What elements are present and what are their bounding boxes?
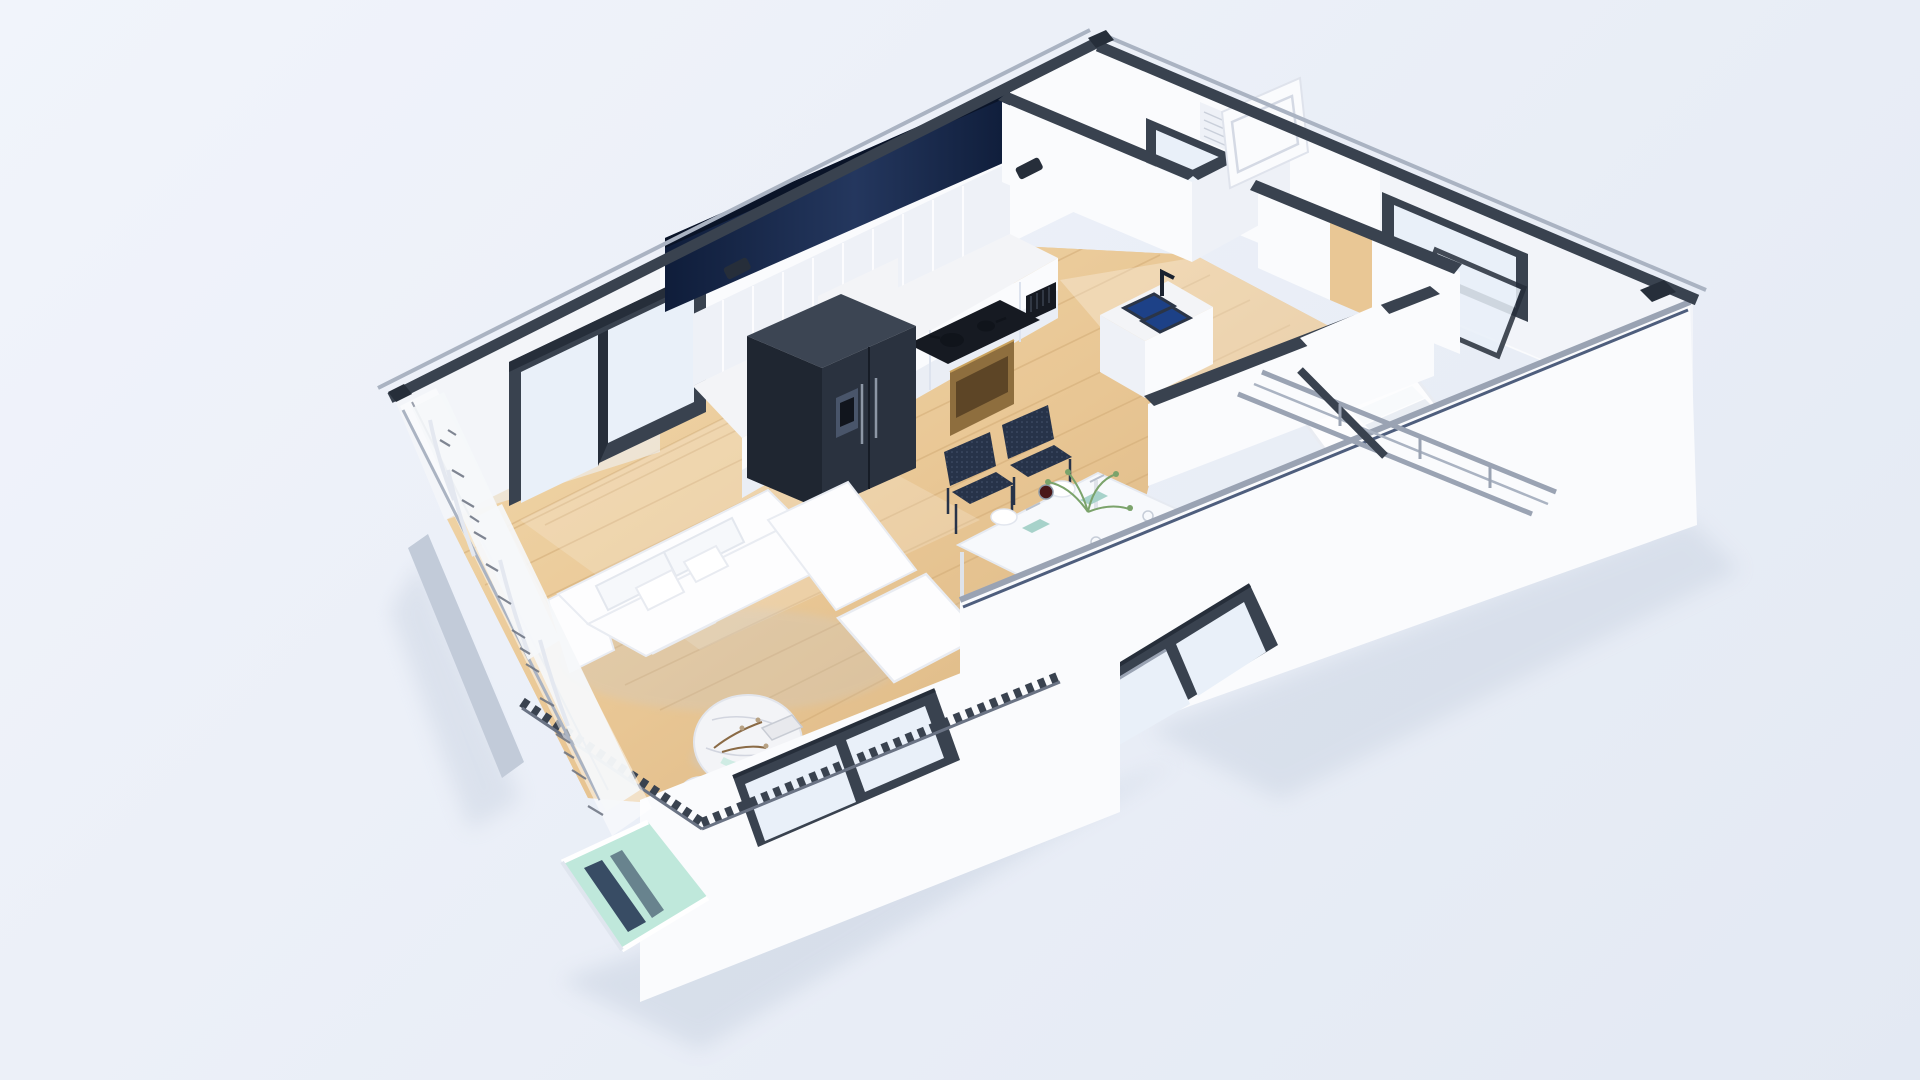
- decor-sprig: [714, 722, 766, 752]
- rail-clip: [723, 257, 752, 280]
- vent-louver: [1200, 102, 1240, 156]
- pot-2: [977, 321, 995, 332]
- bathroom-door: [1222, 78, 1308, 188]
- sink-basin-2: [1142, 307, 1190, 332]
- dining-table: [958, 469, 1240, 670]
- kitchen: [665, 86, 1213, 510]
- front-facade-left: [640, 610, 1120, 1002]
- dining-chair: [944, 432, 1014, 534]
- centerpiece-plant: [1045, 469, 1133, 512]
- upper-cabinets: [693, 162, 1010, 386]
- range-hood-gap: [818, 258, 898, 346]
- dining-chair-3: [1032, 586, 1100, 654]
- cooktop: [908, 300, 1040, 364]
- bathroom-window: [1146, 118, 1252, 216]
- bedroom-partition-left: [1258, 188, 1330, 300]
- base-cabinets: [742, 258, 1058, 498]
- faucet: [1162, 272, 1174, 296]
- front-facade-right: [960, 302, 1697, 796]
- bedroom: [1250, 180, 1462, 470]
- ne-wall: [1098, 46, 1693, 424]
- coffee-table: [679, 695, 804, 815]
- water-dispenser: [836, 388, 858, 438]
- roof-rail-right: [1098, 46, 1697, 300]
- bedroom-partition-right: [1372, 236, 1460, 354]
- roof-rail-back: [390, 42, 1098, 398]
- corner-connector-north: [1088, 30, 1114, 48]
- curtains: [412, 392, 640, 815]
- coffee-table-top: [694, 695, 802, 789]
- pot: [940, 333, 964, 347]
- refrigerator-doors: [822, 326, 916, 510]
- refrigerator: [747, 294, 916, 510]
- bathroom: [998, 78, 1308, 262]
- counter-top: [693, 234, 1058, 438]
- dining-chair-2: [1002, 405, 1072, 505]
- bedroom-window: [1382, 192, 1528, 356]
- stairwell: [1144, 286, 1502, 502]
- stairwell-wall: [1148, 294, 1434, 486]
- roof-rail-back-outer: [378, 30, 1090, 388]
- bedroom-partition-cap: [1250, 180, 1462, 274]
- throw-pillow: [636, 570, 684, 610]
- staircase: [1300, 304, 1502, 502]
- stairwell-wall-cap: [1144, 286, 1440, 406]
- living-room: [548, 482, 982, 815]
- doorway-wood: [1330, 218, 1372, 318]
- balcony-slab: [408, 534, 524, 778]
- sink-basin: [1124, 294, 1174, 320]
- sofa: [548, 482, 982, 682]
- bathroom-wall-cap-left: [998, 92, 1198, 180]
- serrated-parapet: [522, 676, 1060, 829]
- sofa-backrest: [558, 490, 798, 624]
- roof-rail-right-outer: [1106, 36, 1706, 290]
- bed: [1290, 354, 1448, 470]
- floor-surface: [445, 245, 1355, 802]
- front-window-left: [733, 690, 960, 847]
- sofa-ottoman: [838, 574, 982, 682]
- knife-rack: [1026, 282, 1056, 322]
- navy-bulkhead: [665, 86, 1010, 312]
- roof-edge-rails: [378, 30, 1706, 402]
- stair-railings: [1238, 370, 1556, 514]
- rail-clip-2: [1015, 157, 1044, 180]
- back-wall: [395, 46, 1098, 520]
- bathroom-wall-right: [1192, 134, 1290, 262]
- kitchen-sink-unit: [1100, 272, 1213, 398]
- facade-left-face: [640, 610, 1120, 1002]
- back-window: [509, 268, 706, 506]
- balcony-glass-wall: [400, 388, 708, 950]
- back-wall-face: [395, 46, 1098, 520]
- dining-area: [944, 405, 1250, 670]
- isometric-scene: [0, 0, 1920, 1080]
- corner-connector-east: [1640, 280, 1676, 302]
- backsplash-marble: [693, 234, 1015, 436]
- napkin: [1022, 519, 1050, 533]
- teal-glass-corner: [562, 822, 708, 950]
- corner-connector-west: [388, 384, 412, 402]
- bathroom-wall-cap-right: [1188, 124, 1296, 180]
- front-window-right: [1078, 585, 1278, 750]
- dining-chair-4: [1094, 558, 1162, 626]
- dining-table-top: [958, 473, 1240, 615]
- glass-wall-pane: [400, 388, 652, 836]
- book: [762, 715, 802, 740]
- facade-right-face: [960, 302, 1697, 796]
- open-casement-pane: [1410, 250, 1524, 356]
- ne-wall-face: [1098, 46, 1693, 424]
- sofa-seat: [588, 520, 856, 656]
- wood-floor: [440, 170, 1370, 820]
- floorplan-render-canvas: [0, 0, 1920, 1080]
- curtain-botanical-print: [440, 430, 603, 815]
- side-table: [679, 777, 723, 815]
- oven-front: [950, 340, 1014, 436]
- wine-glass: [1039, 485, 1053, 499]
- sofa-chaise: [768, 482, 916, 610]
- ground-shadow: [390, 520, 1740, 1050]
- bathroom-wall-left: [1002, 102, 1192, 262]
- teal-glass-panel: [562, 822, 708, 950]
